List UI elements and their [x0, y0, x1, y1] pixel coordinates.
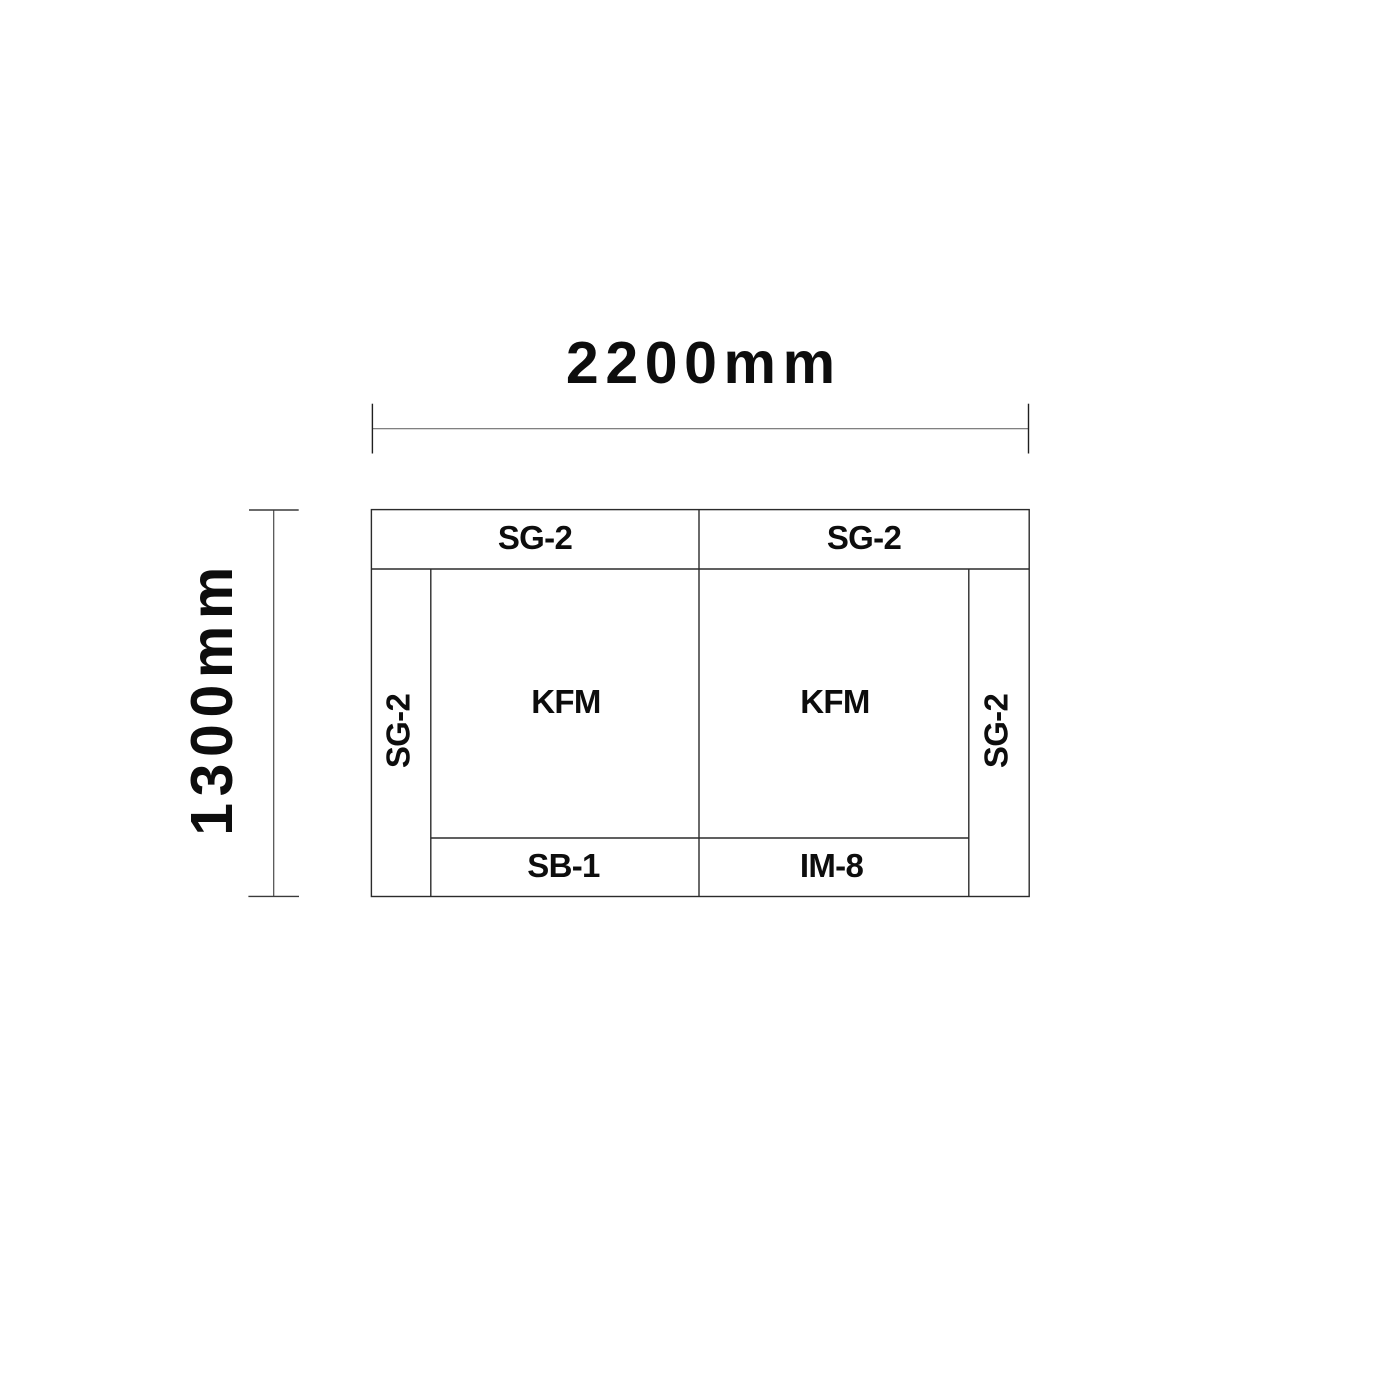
- svg-text:KFM: KFM: [800, 683, 869, 720]
- svg-text:IM-8: IM-8: [800, 847, 864, 884]
- svg-text:SG-2: SG-2: [498, 519, 573, 556]
- svg-text:KFM: KFM: [531, 683, 600, 720]
- svg-text:SG-2: SG-2: [978, 694, 1015, 769]
- svg-text:2200mm: 2200mm: [566, 330, 842, 396]
- svg-text:SG-2: SG-2: [380, 694, 417, 769]
- svg-text:SB-1: SB-1: [527, 847, 600, 884]
- svg-text:SG-2: SG-2: [827, 519, 902, 556]
- svg-text:1300mm: 1300mm: [179, 560, 245, 836]
